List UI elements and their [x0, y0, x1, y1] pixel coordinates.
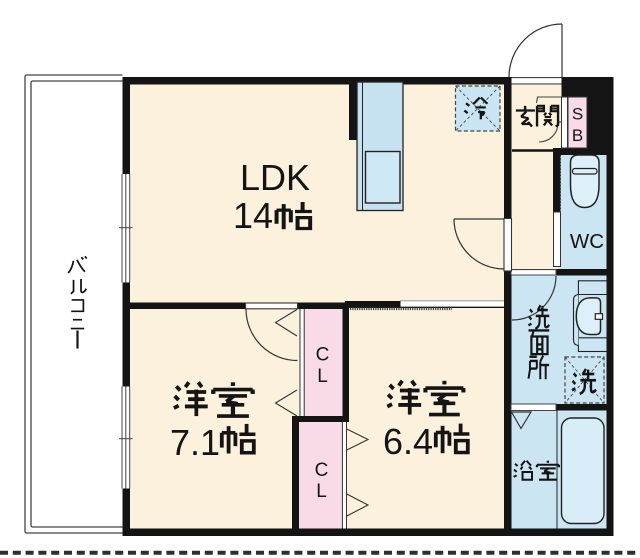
svg-text:L: L: [317, 366, 328, 387]
svg-text:LDK: LDK: [240, 157, 310, 198]
svg-text:S: S: [572, 105, 583, 124]
svg-text:14: 14: [233, 195, 273, 236]
svg-text:L: L: [316, 481, 327, 502]
svg-text:WC: WC: [570, 230, 604, 253]
svg-text:C: C: [315, 460, 329, 481]
svg-text:6.4: 6.4: [383, 421, 433, 462]
svg-text:B: B: [572, 126, 583, 145]
svg-text:7.1: 7.1: [170, 422, 220, 463]
svg-text:C: C: [316, 345, 330, 366]
